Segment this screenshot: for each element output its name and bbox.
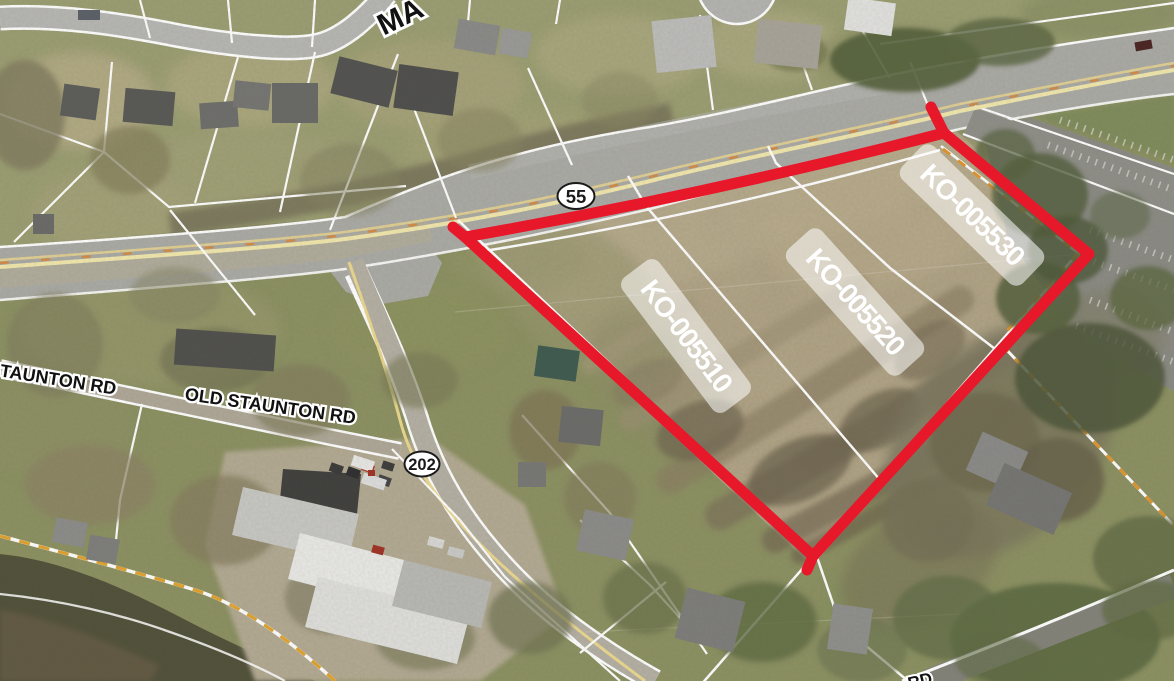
svg-text:202: 202 — [408, 456, 436, 474]
svg-text:55: 55 — [566, 186, 587, 207]
